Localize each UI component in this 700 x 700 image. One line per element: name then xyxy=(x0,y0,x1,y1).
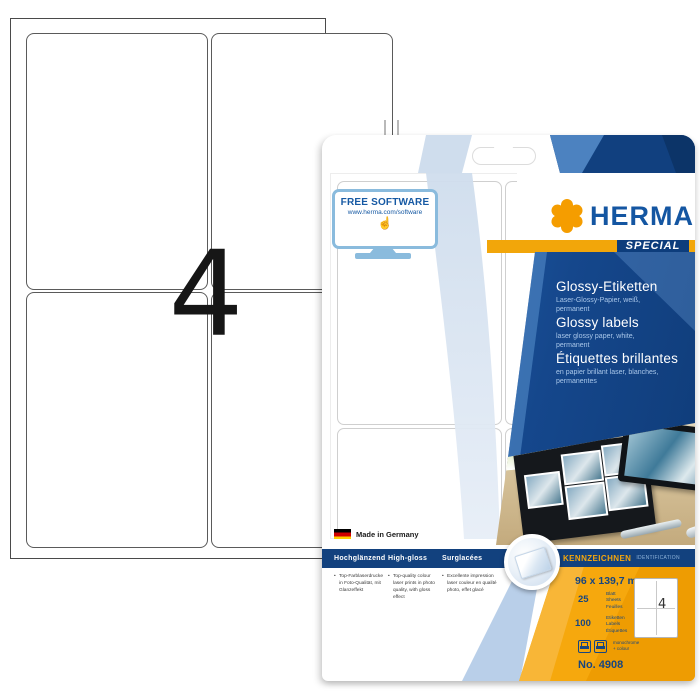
product-title-fr: Étiquettes brillantes xyxy=(556,351,678,366)
hand-pointer-icon: ☝ xyxy=(335,217,435,229)
identification-bar: KENNZEICHNEN IDENTIFICATION xyxy=(555,549,695,567)
inkjet-printer-icon xyxy=(594,640,607,653)
accent-gold-bar: SPECIAL xyxy=(487,240,695,253)
photo-print xyxy=(561,450,604,486)
product-subtitle-en: laser glossy paper, white, permanent xyxy=(556,332,635,350)
printer-note: monochrome + colour xyxy=(613,640,639,652)
features-bar: Hochglänzend High-gloss Surglacées xyxy=(322,549,513,568)
special-badge: SPECIAL xyxy=(617,240,689,253)
feature-bullet-en: Top-quality colour laser prints in photo… xyxy=(388,574,441,602)
brand-name: HERMA xyxy=(590,201,694,232)
gloss-detail-magnifier xyxy=(504,534,560,590)
labels-per-sheet-number: 4 xyxy=(151,235,261,353)
kennzeichnen-label: KENNZEICHNEN xyxy=(563,554,631,563)
product-title-en: Glossy labels xyxy=(556,315,639,330)
feature-header-en: High-gloss xyxy=(388,549,427,568)
registration-mark xyxy=(384,120,386,135)
sheet-count: 25 xyxy=(578,594,589,605)
laser-printer-icon xyxy=(578,640,591,653)
label-count: 100 xyxy=(575,618,591,629)
package-card: FREE SOFTWARE www.herma.com/software ☝ M… xyxy=(322,135,695,681)
label-layout-diagram: 4 xyxy=(634,578,678,638)
product-subtitle-fr: en papier brillant laser, blanches, perm… xyxy=(556,368,658,386)
registration-mark xyxy=(397,120,399,135)
photo-print xyxy=(565,482,609,521)
feature-bullet-fr: Excellente impression laser couleur en q… xyxy=(442,574,505,595)
sheet-count-units: Blatt Sheets Feuilles xyxy=(606,592,623,611)
product-subtitle-de: Laser-Glossy-Papier, weiß, permanent xyxy=(556,296,640,314)
label-count-units: Etiketten Labels Étiquettes xyxy=(606,616,627,635)
free-software-title: FREE SOFTWARE xyxy=(335,197,435,208)
blister-window: FREE SOFTWARE www.herma.com/software ☝ M… xyxy=(330,173,520,539)
made-in-text: Made in Germany xyxy=(356,530,419,539)
free-software-url: www.herma.com/software xyxy=(335,209,435,216)
item-number: No. 4908 xyxy=(578,659,623,671)
feature-header-de: Hochglänzend xyxy=(334,549,385,568)
label-sheet: 4 xyxy=(10,18,326,559)
photo-print xyxy=(524,471,564,509)
diagram-label-count: 4 xyxy=(658,597,666,612)
euro-hang-slot xyxy=(472,147,536,165)
made-in-germany: Made in Germany xyxy=(334,529,419,539)
free-software-badge: FREE SOFTWARE www.herma.com/software ☝ xyxy=(332,189,438,249)
product-shot: 4 FREE SOF xyxy=(0,0,700,700)
identification-label: IDENTIFICATION xyxy=(636,555,680,561)
monitor-base-icon xyxy=(355,253,411,259)
germany-flag-icon xyxy=(334,529,351,539)
feature-bullet-de: Top-Farblaserdrucke in Foto-Qualität, mi… xyxy=(334,574,387,595)
product-title-de: Glossy-Etiketten xyxy=(556,279,657,294)
feature-header-fr: Surglacées xyxy=(442,549,482,568)
herma-asterisk-icon xyxy=(550,199,584,233)
